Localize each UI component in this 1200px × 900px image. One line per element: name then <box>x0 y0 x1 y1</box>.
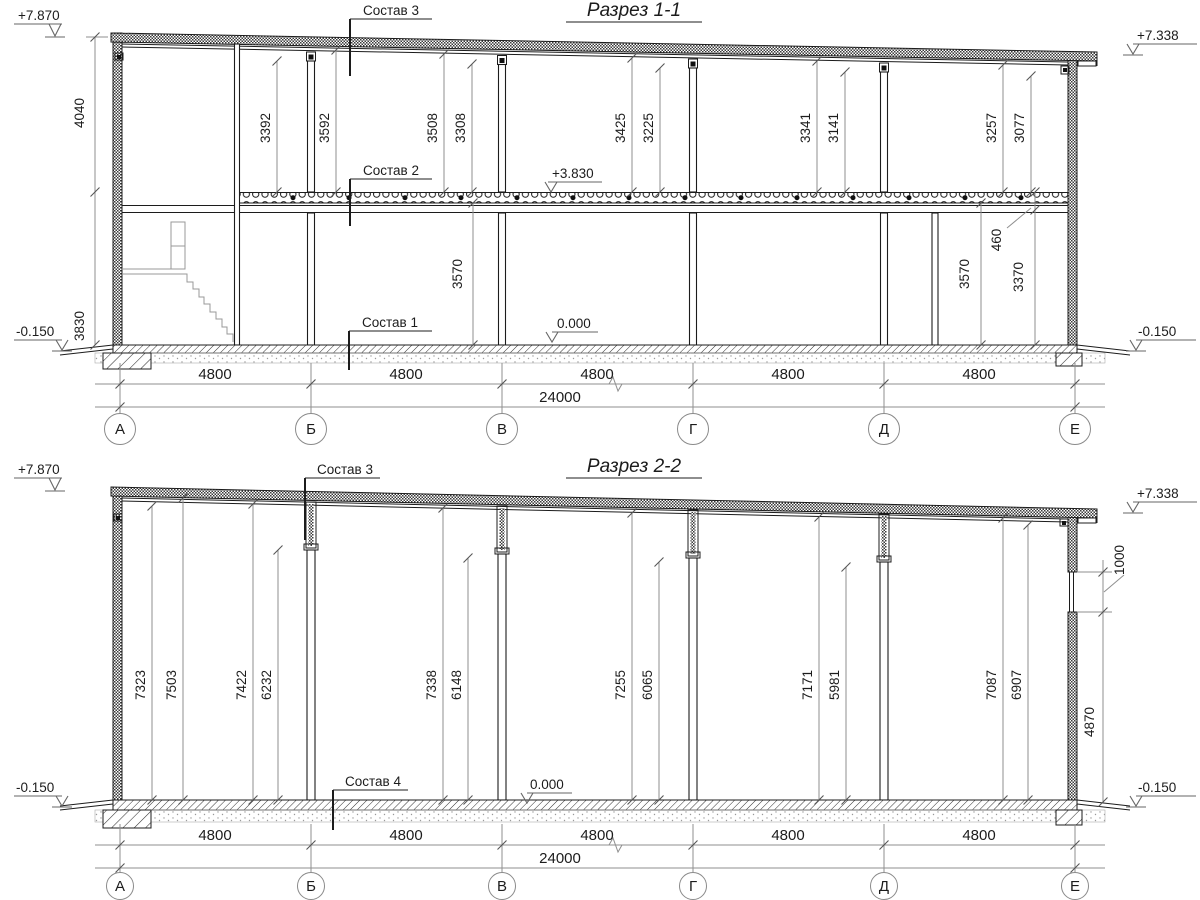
s1-dim-3830: 3830 <box>72 311 87 341</box>
s2-dim-12: 6907 <box>1009 670 1024 700</box>
s2-sostav4-label: Состав 4 <box>345 774 401 789</box>
s2-right-wall-upper <box>1068 517 1077 572</box>
s2-dim-wall-lower: 4870 <box>1082 707 1097 737</box>
s1-dim-f2-7: 3341 <box>798 113 813 143</box>
s1-stair-steps <box>181 274 233 342</box>
s1-dim-f2-4: 3308 <box>453 113 468 143</box>
s1-axis-g: Г <box>689 421 697 438</box>
s2-left-wall <box>113 488 122 807</box>
s2-dim-4: 6232 <box>259 670 274 700</box>
s2-cornice-detail <box>1078 518 1096 523</box>
s1-axis-e: Е <box>1070 421 1080 438</box>
s1-elev-floor2: +3.830 <box>552 166 594 181</box>
s2-bay-dim-5: 4800 <box>962 827 995 844</box>
drawing-sheet: Разрез 1-1 <box>0 0 1200 900</box>
s2-leaders: Состав 3 Состав 4 <box>305 462 408 830</box>
s1-leaders: Состав 3 Состав 2 Состав 1 <box>349 3 432 370</box>
s2-bay-dim-1: 4800 <box>198 827 231 844</box>
s1-underfloor <box>95 353 1105 363</box>
s1-bottom-dimensions: 4800 4800 4800 4800 4800 24000 <box>95 363 1105 414</box>
s1-axis-b: Б <box>306 421 316 438</box>
s1-elev-roof-right: +7.338 <box>1137 28 1179 43</box>
s2-right-wall-lower <box>1068 612 1077 807</box>
s2-dim-6: 6148 <box>449 670 464 700</box>
s1-dim-f2-3: 3508 <box>425 113 440 143</box>
s1-dim-3570-left: 3570 <box>450 259 465 289</box>
section2-title: Разрез 2-2 <box>587 456 682 477</box>
s2-axis-v: В <box>497 878 507 895</box>
sections-drawing: Разрез 1-1 <box>0 0 1200 900</box>
s1-bay-dim-2: 4800 <box>389 366 422 383</box>
s1-dim-3370: 3370 <box>1011 262 1026 292</box>
s1-dim-4040: 4040 <box>72 98 87 128</box>
s2-bay-dim-4: 4800 <box>771 827 804 844</box>
s2-sostav3-label: Состав 3 <box>317 462 373 477</box>
s1-foundation-left <box>103 353 151 369</box>
s2-elev-zero: 0.000 <box>530 777 564 792</box>
s1-axes: А Б В Г Д Е <box>105 414 1091 445</box>
s2-dim-8: 6065 <box>640 670 655 700</box>
s1-stair-wall <box>235 44 240 345</box>
s1-elev-ground-left: -0.150 <box>16 324 54 339</box>
s1-elev-ground-right: -0.150 <box>1138 324 1176 339</box>
s1-stair <box>122 222 233 342</box>
s2-bottom-dimensions: 4800 4800 4800 4800 4800 24000 <box>95 824 1105 873</box>
s1-sostav1-label: Состав 1 <box>362 315 418 330</box>
s1-bay-dim-3: 4800 <box>580 366 613 383</box>
s2-elev-roof-right: +7.338 <box>1137 486 1179 501</box>
s1-dim-f2-2: 3592 <box>317 113 332 143</box>
s2-elev-ground-left: -0.150 <box>16 780 54 795</box>
s1-dim-f2-6: 3225 <box>641 113 656 143</box>
s2-dim-1: 7323 <box>133 670 148 700</box>
s1-vertical-dimensions: 4040 3830 3392 3592 3508 3308 3425 3225 … <box>72 33 1040 350</box>
s1-dim-f2-5: 3425 <box>613 113 628 143</box>
s1-bay-dim-4: 4800 <box>771 366 804 383</box>
s1-right-wall <box>1068 57 1077 352</box>
s2-axis-d: Д <box>879 878 889 895</box>
s1-dim-460: 460 <box>989 229 1004 252</box>
s2-columns <box>304 502 891 800</box>
section-2: Разрез 2-2 <box>14 456 1197 900</box>
s2-axis-a: А <box>115 878 125 895</box>
s1-axis-v: В <box>497 421 507 438</box>
s1-axis-a: А <box>115 421 125 438</box>
s2-dim-window: 1000 <box>1112 545 1127 575</box>
s1-left-wall <box>113 33 122 352</box>
s2-foundation-right <box>1056 810 1082 825</box>
s2-roof-slab <box>111 487 1097 518</box>
s1-partition <box>932 213 938 345</box>
s1-bay-dim-1: 4800 <box>198 366 231 383</box>
s1-ground-floor <box>113 345 1077 353</box>
s1-floor2-slab <box>237 193 1068 204</box>
s1-dim-f2-9: 3257 <box>984 113 999 143</box>
s2-dim-7: 7255 <box>613 670 628 700</box>
s2-foundation-left <box>103 810 151 828</box>
section1-title: Разрез 1-1 <box>587 0 681 21</box>
s2-axis-b: Б <box>306 878 316 895</box>
s2-dim-9: 7171 <box>800 670 815 700</box>
s1-dim-f2-8: 3141 <box>826 113 841 143</box>
s2-dim-2: 7503 <box>164 670 179 700</box>
s1-elev-top-left: +7.870 <box>18 8 60 23</box>
s1-axis-d: Д <box>879 421 889 438</box>
s1-sostav3-label: Состав 3 <box>363 3 419 18</box>
s2-window <box>1068 572 1077 612</box>
s1-dim-f2-1: 3392 <box>258 113 273 143</box>
s1-bay-dim-5: 4800 <box>962 366 995 383</box>
s1-cornice-detail <box>1078 61 1096 66</box>
s2-total-dim: 24000 <box>539 850 581 867</box>
s2-ground-floor <box>113 800 1077 810</box>
section-1: Разрез 1-1 <box>14 0 1197 445</box>
s1-total-dim: 24000 <box>539 389 581 406</box>
s2-bay-dim-2: 4800 <box>389 827 422 844</box>
s1-dim-3570-right: 3570 <box>957 259 972 289</box>
s1-foundation-right <box>1056 353 1082 366</box>
s2-dim-3: 7422 <box>234 670 249 700</box>
s2-dim-10: 5981 <box>827 670 842 700</box>
s1-elev-zero: 0.000 <box>557 316 591 331</box>
s2-bay-dim-3: 4800 <box>580 827 613 844</box>
s2-dim-5: 7338 <box>424 670 439 700</box>
s1-sostav2-label: Состав 2 <box>363 163 419 178</box>
s2-axis-e: Е <box>1070 878 1080 895</box>
s2-elev-top-left: +7.870 <box>18 462 60 477</box>
s2-structure <box>60 487 1130 828</box>
s2-dim-11: 7087 <box>984 670 999 700</box>
s2-elev-ground-right: -0.150 <box>1138 780 1176 795</box>
s2-underfloor <box>95 810 1105 822</box>
s1-dim-f2-10: 3077 <box>1012 113 1027 143</box>
s2-vertical-dimensions: 7323 7503 7422 6232 7338 6148 7255 6065 … <box>133 494 1127 807</box>
s2-axis-g: Г <box>689 878 697 895</box>
s2-axes: А Б В Г Д Е <box>107 873 1089 900</box>
